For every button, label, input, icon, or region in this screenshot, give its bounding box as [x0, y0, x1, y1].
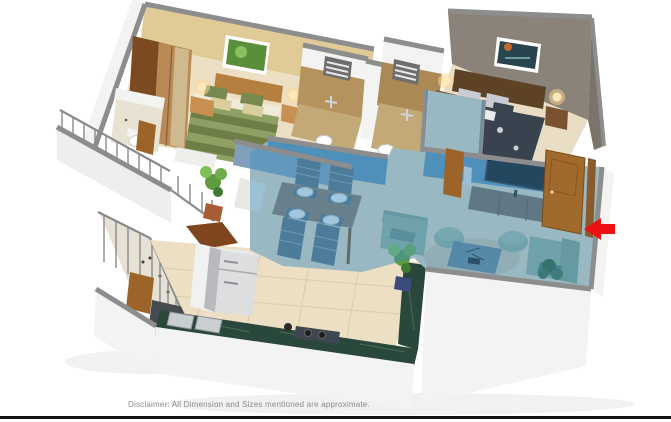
floor-plan-render: [0, 0, 671, 422]
bathroom-1: [291, 45, 368, 150]
entrance-door: [542, 150, 596, 238]
living-south-wall: [421, 271, 591, 404]
potted-plant: [200, 166, 227, 222]
bottom-border: [0, 416, 671, 419]
passage-door: [443, 148, 464, 198]
attached-toilet: [111, 88, 165, 155]
floor-plan-page: Disclaimer: All Dimension and Sizes ment…: [0, 0, 671, 422]
refrigerator: [204, 247, 259, 316]
disclaimer-text: Disclaimer: All Dimension and Sizes ment…: [128, 400, 370, 409]
toilet-door: [136, 120, 156, 155]
